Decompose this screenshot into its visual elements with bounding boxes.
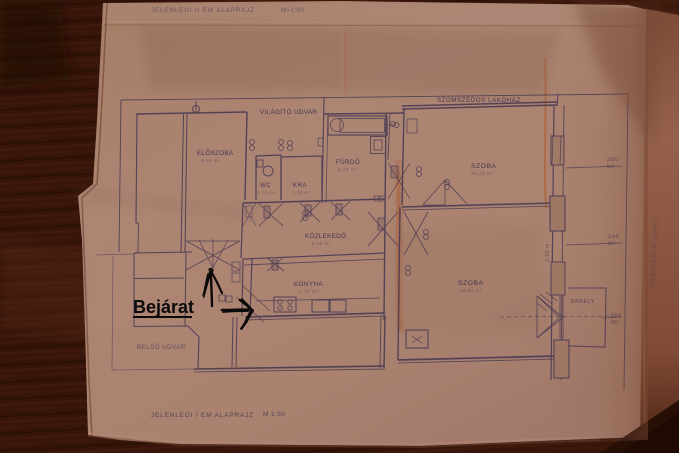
svg-text:Bejárat: Bejárat: [133, 297, 194, 317]
